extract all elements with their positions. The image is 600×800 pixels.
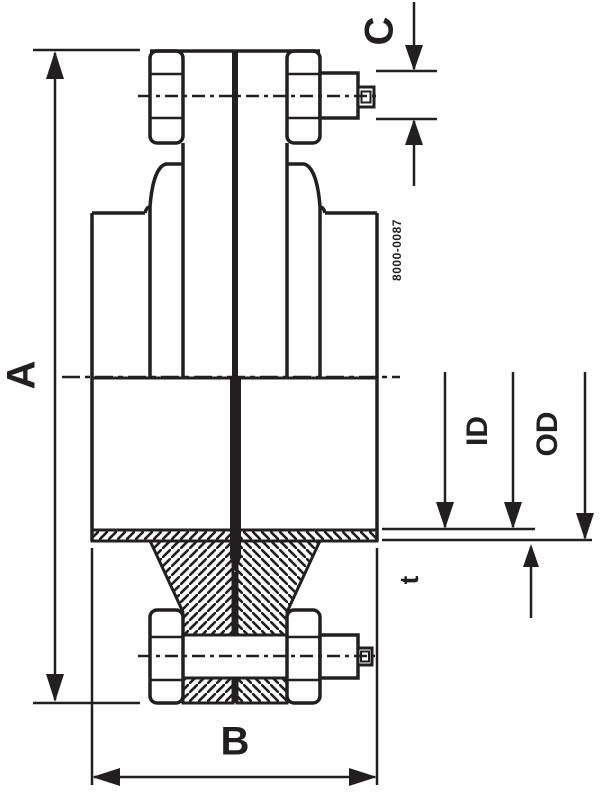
gasket-edge-bore	[230, 377, 241, 558]
label-od: OD	[531, 412, 564, 457]
arrow-a-up	[46, 51, 64, 79]
top-bolt-assembly	[138, 51, 380, 143]
arrow-t-up	[523, 544, 539, 567]
label-a: A	[0, 361, 44, 390]
dimension-t: t	[394, 544, 539, 618]
arrow-c-up	[405, 119, 423, 145]
arrow-id-2	[504, 502, 522, 529]
label-c: C	[358, 17, 402, 46]
flange-union-drawing: A B C ID OD t 8000-0087	[0, 0, 600, 800]
arrow-b-left	[92, 768, 120, 786]
arrow-b-right	[349, 768, 377, 786]
technical-drawing-page: A B C ID OD t 8000-0087	[0, 0, 600, 800]
part-number-label: 8000-0087	[390, 219, 404, 281]
arrow-id-1	[436, 502, 454, 529]
left-hub-curve	[150, 164, 183, 207]
label-id: ID	[461, 416, 494, 446]
arrow-a-down	[46, 674, 64, 702]
label-t: t	[394, 575, 424, 584]
arrow-c-down	[405, 45, 423, 71]
dimension-id-od: ID OD	[382, 372, 594, 540]
arrow-od	[576, 513, 594, 540]
label-b: B	[221, 720, 250, 764]
gasket-edge-upper	[232, 51, 238, 378]
right-hub-curve	[287, 164, 320, 207]
